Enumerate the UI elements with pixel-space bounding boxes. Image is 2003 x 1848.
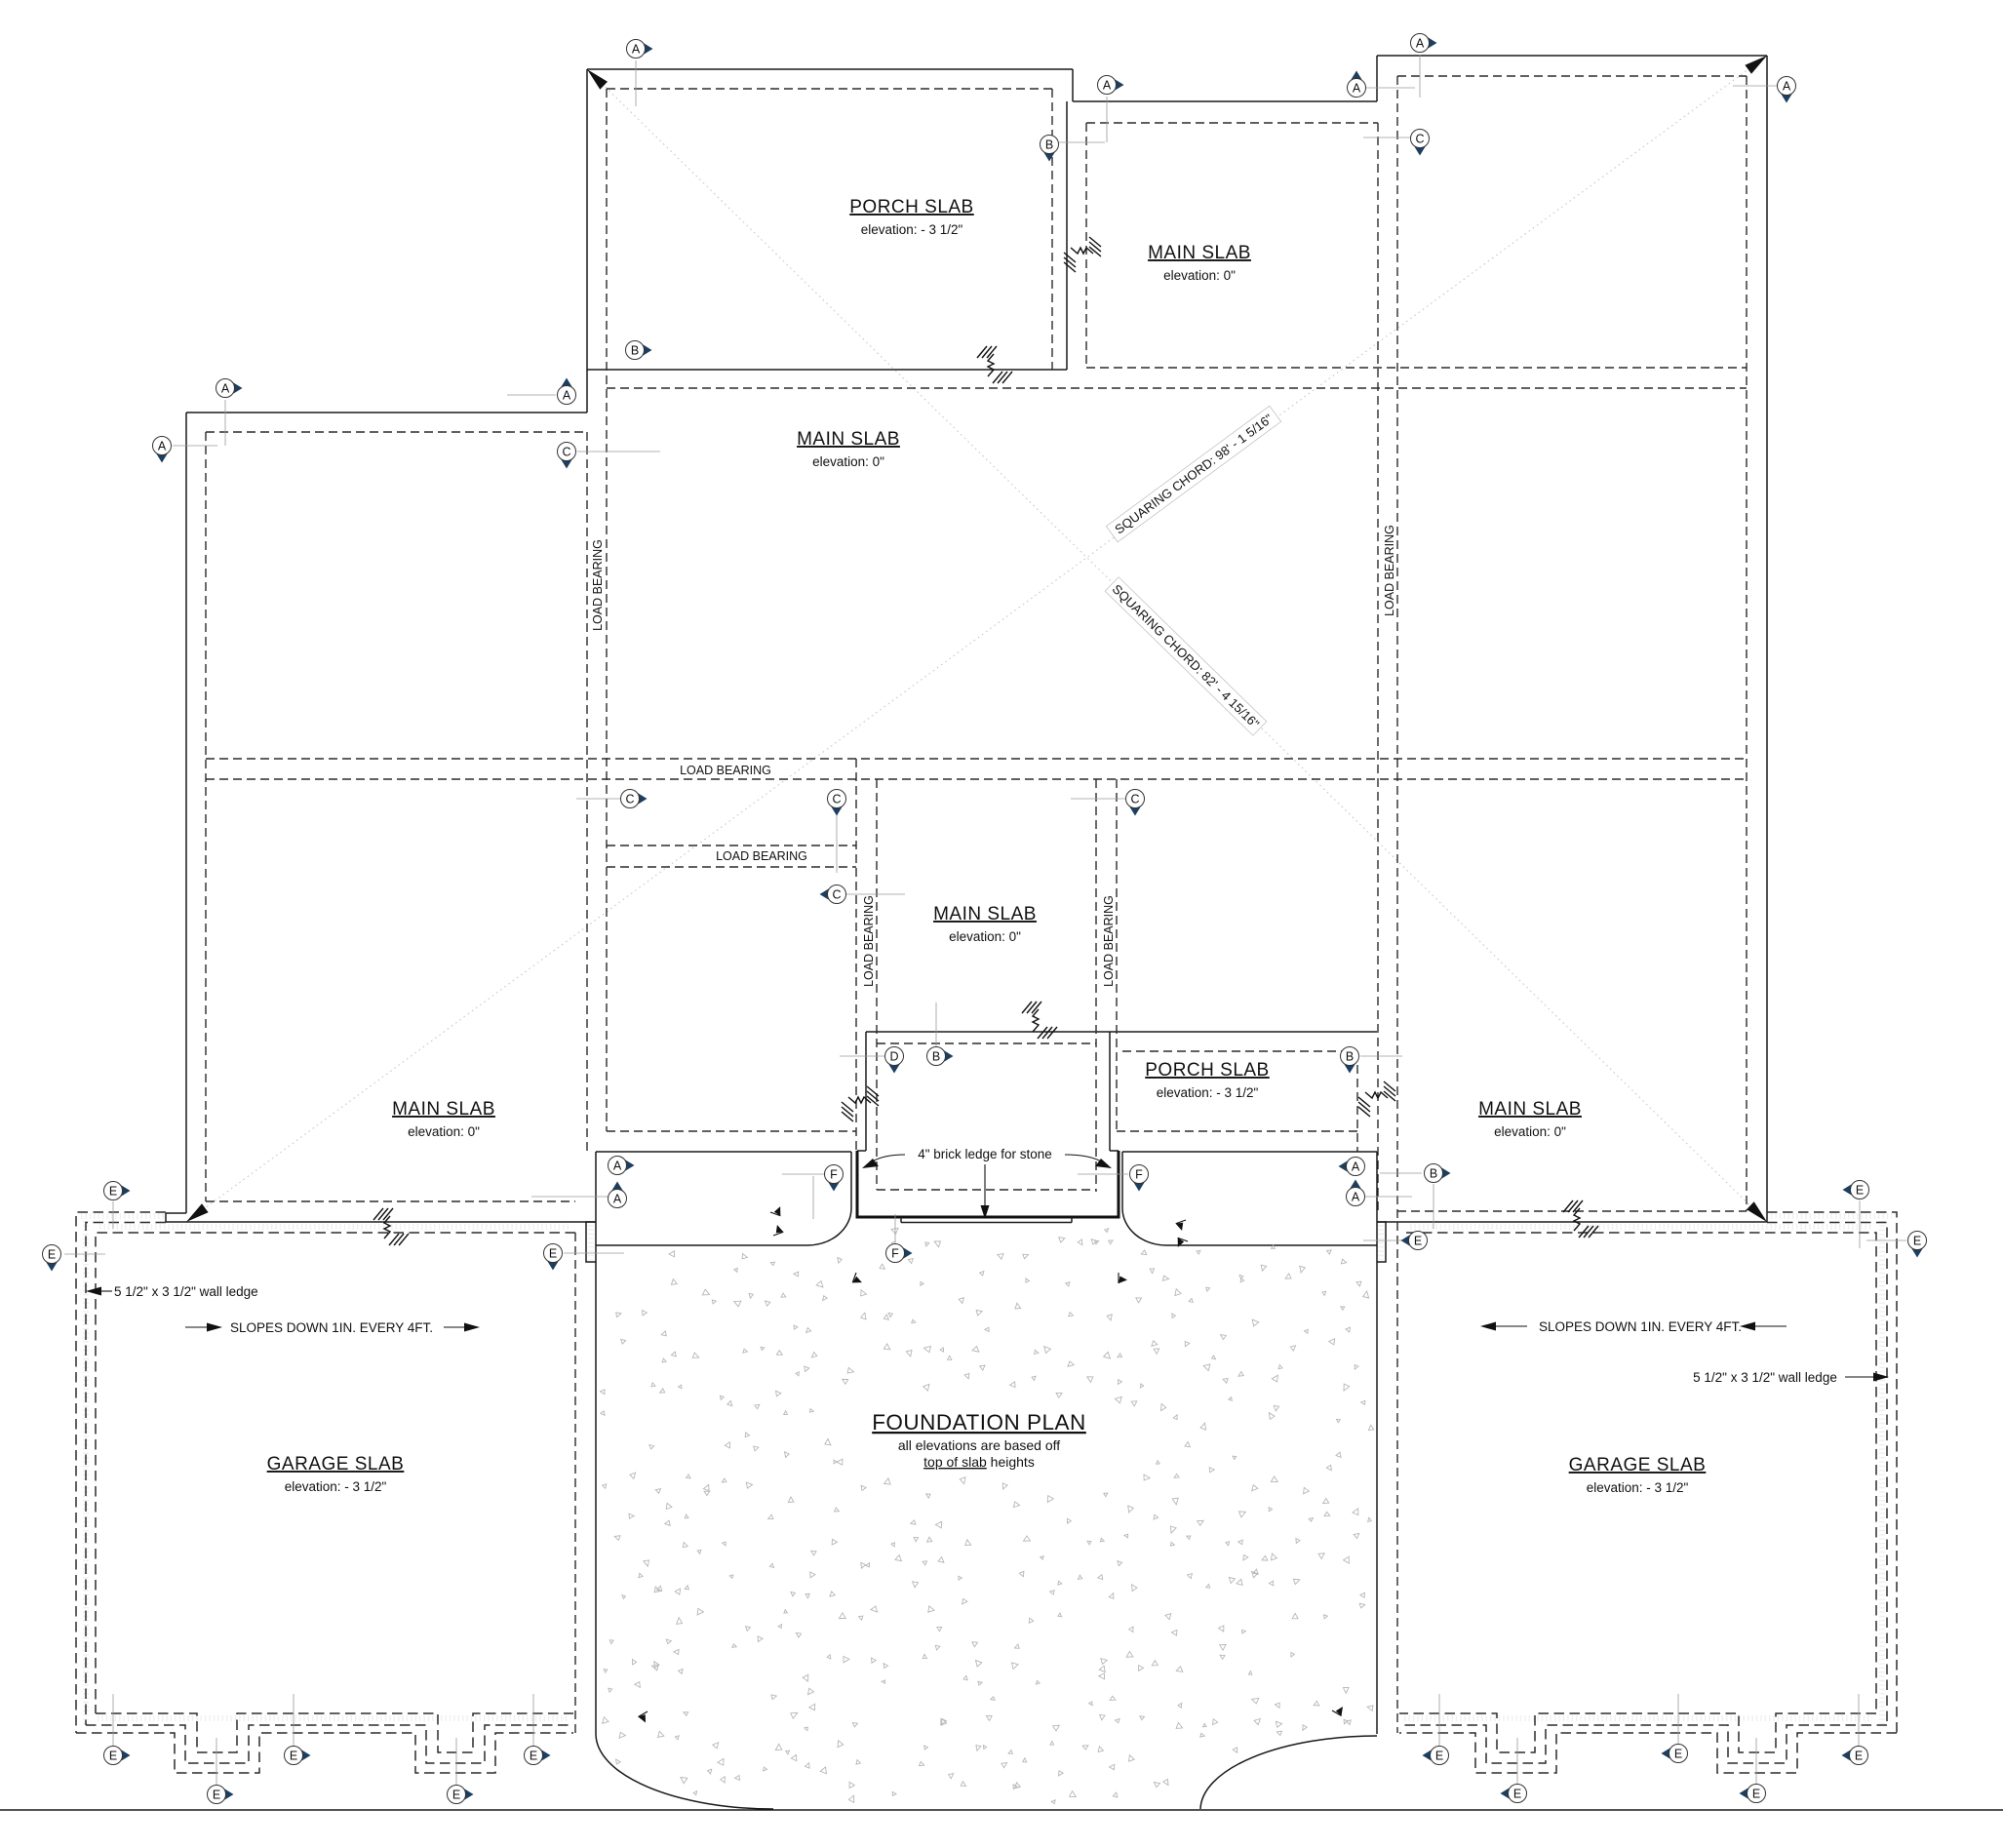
svg-text:A: A [632,42,641,56]
svg-text:E: E [549,1246,557,1260]
svg-text:SLOPES DOWN 1IN. EVERY 4FT.: SLOPES DOWN 1IN. EVERY 4FT. [230,1320,433,1335]
svg-text:all elevations are based off: all elevations are based off [898,1437,1060,1453]
svg-text:GARAGE SLAB: GARAGE SLAB [267,1454,405,1474]
svg-text:E: E [530,1749,537,1762]
svg-text:PORCH SLAB: PORCH SLAB [1145,1060,1269,1081]
svg-text:5 1/2" x 3 1/2" wall ledge: 5 1/2" x 3 1/2" wall ledge [114,1284,258,1299]
svg-text:MAIN SLAB: MAIN SLAB [797,429,900,450]
svg-text:A: A [1103,78,1112,92]
svg-text:LOAD BEARING: LOAD BEARING [680,764,771,777]
svg-text:E: E [1674,1747,1682,1760]
svg-text:FOUNDATION PLAN: FOUNDATION PLAN [872,1410,1086,1435]
svg-text:elevation: - 3 1/2": elevation: - 3 1/2" [861,222,963,237]
svg-text:LOAD BEARING: LOAD BEARING [716,849,807,863]
svg-text:elevation: 0": elevation: 0" [1494,1124,1566,1139]
svg-text:4" brick ledge for stone: 4" brick ledge for stone [918,1147,1052,1161]
svg-text:SLOPES DOWN 1IN. EVERY 4FT.: SLOPES DOWN 1IN. EVERY 4FT. [1539,1319,1742,1334]
svg-text:F: F [1135,1167,1143,1181]
svg-text:C: C [1415,132,1424,145]
svg-text:A: A [221,381,230,395]
svg-text:E: E [1752,1787,1760,1800]
svg-text:5 1/2" x 3 1/2" wall ledge: 5 1/2" x 3 1/2" wall ledge [1693,1370,1837,1385]
svg-text:MAIN SLAB: MAIN SLAB [1148,243,1251,263]
svg-text:C: C [1130,792,1139,806]
svg-text:E: E [213,1788,220,1801]
svg-text:PORCH SLAB: PORCH SLAB [849,197,973,217]
svg-text:B: B [1045,138,1053,151]
svg-text:elevation: 0": elevation: 0" [1163,268,1236,283]
svg-text:D: D [889,1049,898,1063]
svg-text:C: C [625,792,634,806]
svg-text:E: E [290,1749,297,1762]
svg-text:E: E [109,1184,117,1198]
svg-text:B: B [1430,1166,1437,1180]
svg-text:A: A [1783,79,1791,93]
svg-text:E: E [1414,1234,1422,1247]
svg-text:C: C [562,445,570,458]
svg-text:elevation: - 3 1/2": elevation: - 3 1/2" [1587,1480,1689,1495]
svg-text:A: A [158,439,167,452]
svg-text:top of slab heights: top of slab heights [923,1454,1035,1470]
svg-text:F: F [830,1167,838,1181]
svg-text:B: B [1346,1049,1354,1063]
svg-text:E: E [1856,1183,1864,1197]
svg-text:B: B [631,343,639,357]
svg-text:E: E [109,1749,117,1762]
svg-text:LOAD BEARING: LOAD BEARING [1102,895,1116,987]
svg-text:MAIN SLAB: MAIN SLAB [392,1099,495,1120]
svg-text:E: E [452,1788,460,1801]
svg-text:elevation: 0": elevation: 0" [949,929,1021,944]
svg-text:C: C [832,887,841,901]
svg-text:E: E [1513,1787,1521,1800]
svg-text:A: A [1352,1160,1360,1173]
svg-text:A: A [613,1159,622,1172]
svg-text:A: A [1352,1190,1360,1203]
svg-text:elevation: - 3 1/2": elevation: - 3 1/2" [1157,1085,1259,1100]
svg-text:A: A [1416,36,1425,50]
svg-text:MAIN SLAB: MAIN SLAB [933,904,1037,924]
svg-text:elevation: 0": elevation: 0" [812,454,884,469]
svg-text:A: A [613,1192,622,1205]
svg-text:F: F [891,1246,899,1260]
svg-text:elevation: 0": elevation: 0" [408,1124,480,1139]
svg-text:A: A [1353,81,1361,95]
svg-text:E: E [48,1247,56,1261]
svg-text:C: C [832,792,841,806]
svg-text:E: E [1913,1234,1921,1247]
svg-text:A: A [563,388,571,402]
svg-text:GARAGE SLAB: GARAGE SLAB [1569,1455,1707,1475]
svg-text:E: E [1435,1749,1443,1762]
svg-text:MAIN SLAB: MAIN SLAB [1478,1099,1582,1120]
svg-text:LOAD BEARING: LOAD BEARING [1383,525,1396,616]
svg-text:LOAD BEARING: LOAD BEARING [591,539,605,631]
svg-text:elevation: - 3 1/2": elevation: - 3 1/2" [285,1479,387,1494]
svg-text:E: E [1855,1749,1863,1762]
svg-text:B: B [932,1049,940,1063]
svg-text:LOAD BEARING: LOAD BEARING [862,895,876,987]
